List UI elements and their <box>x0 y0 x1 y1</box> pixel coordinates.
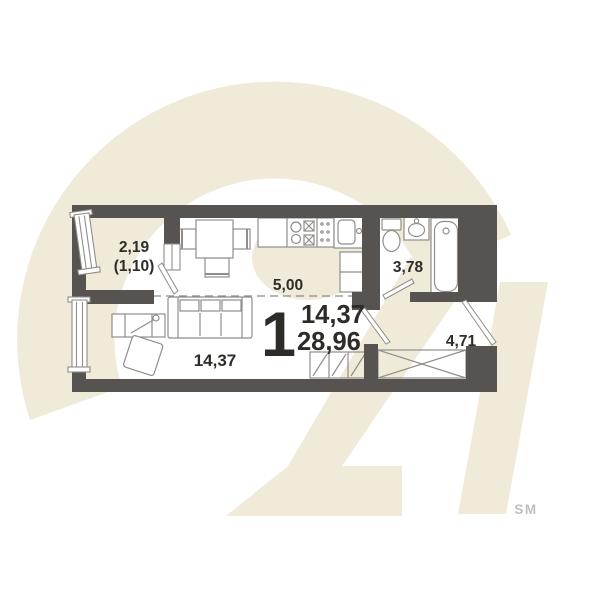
balcony-block-window <box>164 244 180 270</box>
wall-top <box>72 205 497 218</box>
wall-right-upper <box>458 218 497 302</box>
kitchen-sink-faucet <box>357 229 362 234</box>
rooms-count-label: 1 <box>261 300 296 370</box>
washbasin-faucet <box>414 219 418 223</box>
living-room-area-label: 14,37 <box>194 351 237 370</box>
length-dimension-label: 5,00 <box>273 277 303 294</box>
floor-plan-page: 2,19 (1,10) 5,00 1 14,37 28,96 14,37 3,7… <box>0 0 600 600</box>
window-frame <box>72 300 87 370</box>
bathtub-drain <box>443 228 449 234</box>
toilet-bowl <box>383 231 400 252</box>
wall-balcony-right <box>164 218 180 244</box>
wall-bath-bottom <box>410 292 458 302</box>
hallway-area-label: 4,71 <box>446 333 477 350</box>
stove-burner-1 <box>291 222 301 232</box>
kitchen-sink-bowl <box>338 220 355 244</box>
brand-sm-mark: SM <box>514 502 537 517</box>
wall-right-step <box>466 346 497 386</box>
balcony-area-label: 2,19 <box>119 239 150 256</box>
wall-kitchen-bath-divider <box>362 218 380 302</box>
stove-burner-2 <box>292 235 301 244</box>
wardrobe-hatch-1 <box>313 354 327 376</box>
floor-plan: 2,19 (1,10) 5,00 1 14,37 28,96 14,37 3,7… <box>0 0 600 600</box>
toilet-tank <box>382 219 401 230</box>
sofa-pillow-3 <box>222 300 241 311</box>
sofa-pillow-1 <box>180 300 199 311</box>
living-area-label: 14,37 <box>301 301 365 329</box>
wall-bottom <box>72 379 497 392</box>
washbasin-bowl <box>409 224 425 237</box>
window-cap-bottom <box>68 367 90 372</box>
dining-table <box>196 220 233 258</box>
sofa-pillow-2 <box>201 300 220 311</box>
watermark-1-stem <box>458 282 548 514</box>
desk-chair <box>123 335 164 376</box>
desk-lamp-head <box>153 315 159 321</box>
total-area-label: 28,96 <box>297 328 361 356</box>
balcony-reduced-area-label: (1,10) <box>114 258 155 275</box>
bathroom-area-label: 3,78 <box>393 259 424 276</box>
wall-hall-stub <box>364 344 378 379</box>
